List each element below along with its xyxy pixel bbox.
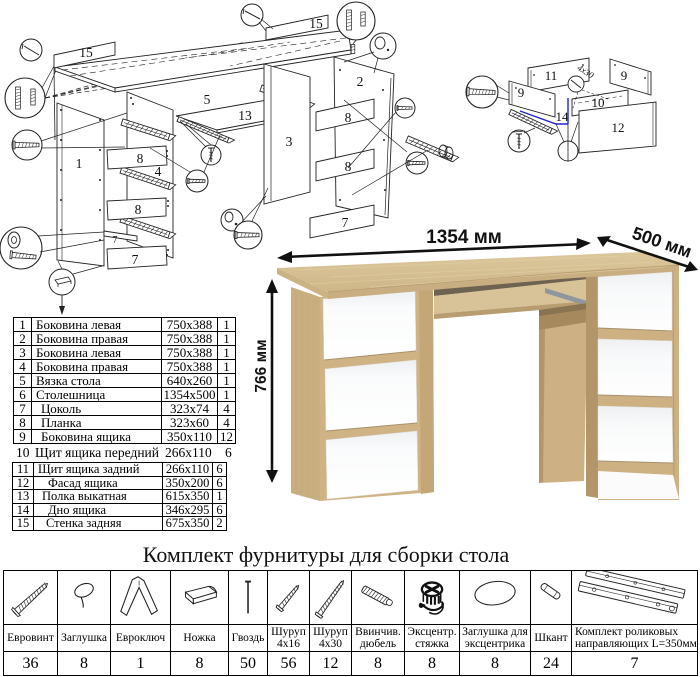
svg-text:1354 мм: 1354 мм	[426, 227, 502, 248]
svg-text:766 мм: 766 мм	[253, 339, 270, 392]
